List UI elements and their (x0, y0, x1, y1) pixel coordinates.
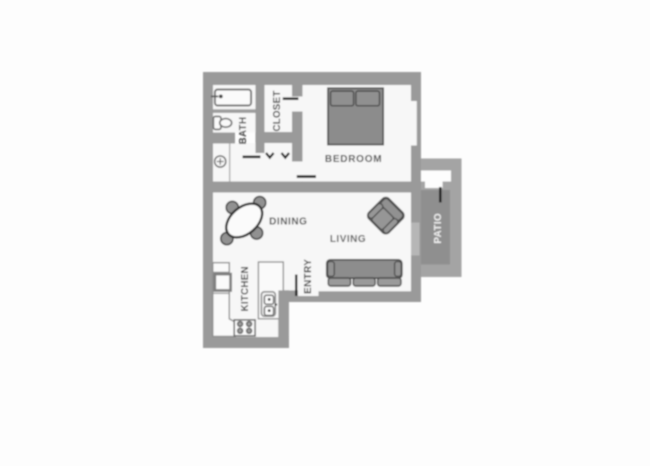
svg-text:BEDROOM: BEDROOM (325, 154, 382, 165)
svg-text:CLOSET: CLOSET (272, 90, 283, 131)
svg-text:KITCHEN: KITCHEN (240, 266, 251, 311)
svg-text:PATIO: PATIO (433, 213, 444, 244)
svg-text:ENTRY: ENTRY (303, 259, 314, 294)
svg-text:LIVING: LIVING (330, 234, 366, 245)
svg-text:BATH: BATH (238, 117, 249, 145)
svg-text:DINING: DINING (269, 217, 307, 228)
